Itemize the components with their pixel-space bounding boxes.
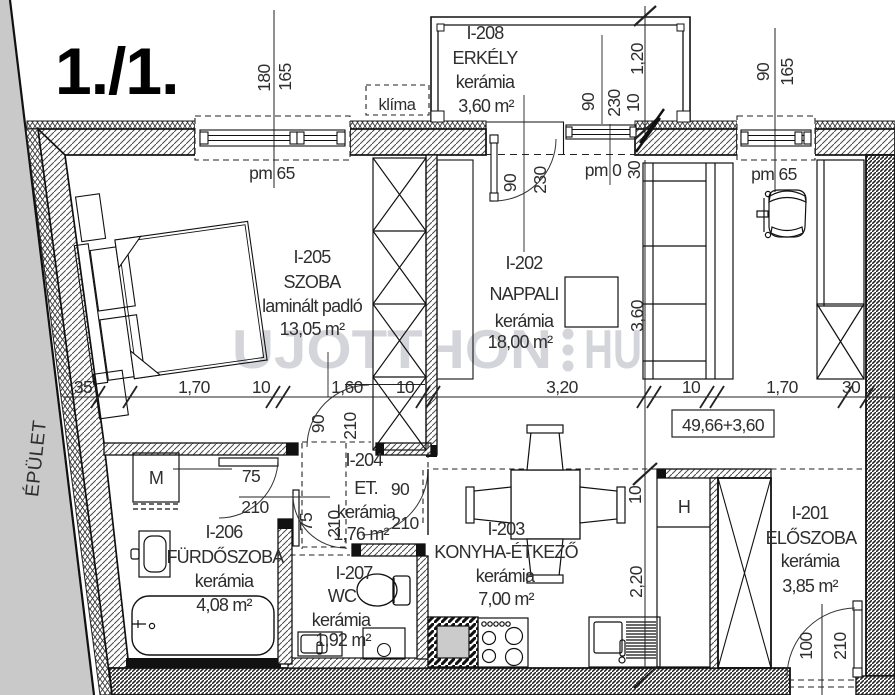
- svg-text:165: 165: [777, 58, 797, 85]
- svg-text:ET.: ET.: [354, 478, 378, 498]
- svg-text:M: M: [149, 468, 163, 488]
- svg-text:ERKÉLY: ERKÉLY: [453, 48, 519, 68]
- svg-text:165: 165: [275, 63, 295, 90]
- svg-text:18,00 m²: 18,00 m²: [488, 332, 553, 352]
- svg-text:210: 210: [340, 411, 360, 439]
- svg-text:180: 180: [254, 63, 274, 91]
- svg-text:I-203: I-203: [487, 519, 525, 539]
- svg-text:75: 75: [296, 513, 316, 531]
- svg-text:230: 230: [604, 88, 624, 116]
- svg-text:30: 30: [842, 377, 861, 397]
- svg-text:13,05 m²: 13,05 m²: [280, 319, 345, 339]
- svg-text:2,20: 2,20: [626, 565, 646, 598]
- svg-text:pm 65: pm 65: [751, 164, 797, 184]
- svg-text:I-205: I-205: [293, 247, 331, 267]
- svg-text:35: 35: [74, 377, 92, 397]
- svg-text:90: 90: [308, 414, 328, 433]
- svg-text:4,08 m²: 4,08 m²: [196, 595, 252, 615]
- svg-text:7,00 m²: 7,00 m²: [478, 589, 534, 609]
- svg-text:kerámia: kerámia: [495, 311, 555, 331]
- svg-text:1,60: 1,60: [331, 377, 364, 397]
- svg-text:kerámia: kerámia: [337, 502, 397, 522]
- svg-text:kerámia: kerámia: [456, 72, 516, 92]
- svg-text:49,66+3,60: 49,66+3,60: [682, 415, 765, 435]
- svg-text:10: 10: [625, 485, 645, 504]
- svg-text:210: 210: [241, 497, 269, 517]
- svg-text:WC: WC: [328, 586, 357, 606]
- svg-text:ELŐSZOBA: ELŐSZOBA: [766, 527, 857, 548]
- svg-text:I-201: I-201: [791, 503, 829, 523]
- svg-text:SZOBA: SZOBA: [283, 272, 341, 292]
- svg-text:10: 10: [623, 93, 643, 112]
- svg-text:1,92 m²: 1,92 m²: [315, 630, 371, 650]
- svg-text:1,20: 1,20: [627, 42, 647, 75]
- svg-text:1,70: 1,70: [178, 377, 211, 397]
- svg-text:3,20: 3,20: [546, 377, 579, 397]
- svg-text:laminált padló: laminált padló: [262, 296, 363, 316]
- svg-text:I-204: I-204: [345, 450, 383, 470]
- svg-text:pm 65: pm 65: [249, 163, 295, 183]
- svg-text:210: 210: [391, 513, 419, 533]
- svg-text:10: 10: [396, 377, 415, 397]
- svg-text:FÜRDŐSZOBA: FÜRDŐSZOBA: [166, 546, 284, 567]
- svg-text:90: 90: [578, 92, 598, 111]
- svg-text:75: 75: [242, 466, 260, 486]
- svg-text:210: 210: [830, 631, 850, 659]
- svg-text:KONYHA-ÉTKEZŐ: KONYHA-ÉTKEZŐ: [434, 541, 578, 562]
- svg-text:1,70: 1,70: [766, 377, 799, 397]
- svg-text:30: 30: [624, 160, 644, 179]
- svg-text:klíma: klíma: [379, 96, 417, 114]
- svg-text:90: 90: [753, 62, 773, 81]
- svg-text:3,60: 3,60: [627, 299, 647, 332]
- svg-text:I-202: I-202: [505, 253, 543, 273]
- svg-text:kerámia: kerámia: [312, 610, 372, 630]
- svg-text:kerámia: kerámia: [781, 551, 841, 571]
- svg-text:I-208: I-208: [466, 23, 504, 43]
- svg-text:kerámia: kerámia: [476, 566, 536, 586]
- svg-text:10: 10: [682, 377, 701, 397]
- svg-text:3,85 m²: 3,85 m²: [782, 576, 838, 596]
- svg-text:pm 0: pm 0: [585, 160, 622, 180]
- svg-text:1./1.: 1./1.: [55, 34, 178, 108]
- svg-text:90: 90: [391, 479, 410, 499]
- svg-text:1,76 m²: 1,76 m²: [333, 524, 389, 544]
- svg-text:230: 230: [530, 165, 550, 193]
- svg-text:10: 10: [252, 377, 271, 397]
- svg-text:90: 90: [500, 173, 520, 192]
- svg-text:I-206: I-206: [205, 522, 243, 542]
- svg-text:100: 100: [796, 631, 816, 659]
- svg-text:3,60 m²: 3,60 m²: [458, 96, 514, 116]
- svg-text:NAPPALI: NAPPALI: [489, 284, 558, 304]
- svg-text:kerámia: kerámia: [195, 571, 255, 591]
- svg-text:H: H: [678, 497, 690, 517]
- svg-text:I-207: I-207: [335, 563, 373, 583]
